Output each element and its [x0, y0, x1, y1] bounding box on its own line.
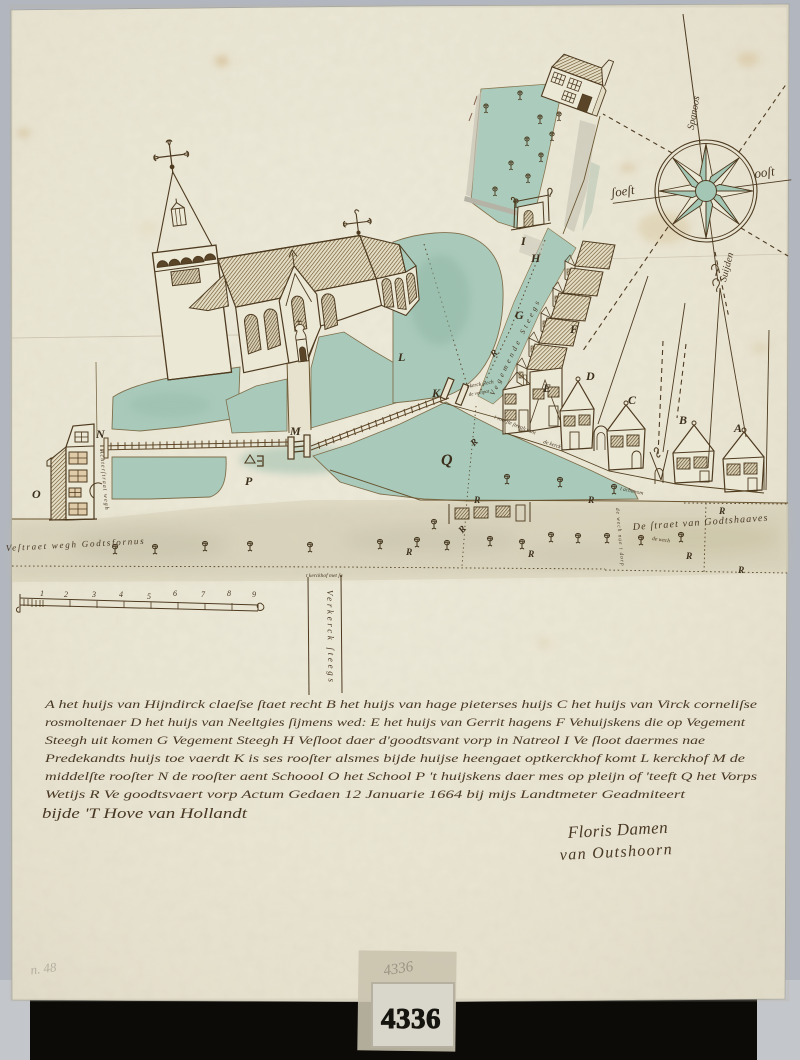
svg-text:Steegh uit komen G Vegement St: Steegh uit komen G Vegement Steegh H Veſ…	[45, 735, 705, 747]
svg-text:N: N	[95, 427, 106, 441]
svg-text:R: R	[527, 550, 534, 560]
svg-text:R: R	[685, 552, 692, 562]
svg-text:ooſt: ooſt	[753, 163, 775, 181]
svg-text:1: 1	[40, 589, 44, 598]
svg-text:B: B	[678, 413, 687, 427]
svg-text:R: R	[405, 548, 412, 558]
svg-text:t kerckhof met ſa: t kerckhof met ſa	[306, 572, 343, 579]
svg-text:R: R	[473, 496, 480, 506]
svg-text:D: D	[585, 369, 595, 383]
svg-text:middelſte rooſter N de rooſter: middelſte rooſter N de rooſter aent Scho…	[45, 771, 758, 783]
svg-text:R: R	[587, 496, 594, 506]
svg-text:O: O	[32, 487, 41, 501]
svg-text:Q: Q	[441, 452, 453, 469]
svg-text:P: P	[245, 474, 253, 488]
svg-text:L: L	[397, 350, 405, 364]
svg-text:4336: 4336	[381, 1003, 441, 1035]
svg-text:2: 2	[64, 590, 68, 599]
svg-text:Predekandts huijs toe vaerdt K: Predekandts huijs toe vaerdt K is ses ro…	[44, 753, 745, 765]
svg-text:5: 5	[147, 592, 151, 601]
svg-text:4: 4	[119, 590, 123, 599]
svg-text:F: F	[569, 322, 578, 336]
svg-text:R: R	[737, 566, 744, 576]
svg-text:A: A	[733, 421, 742, 435]
svg-text:8: 8	[227, 589, 231, 598]
svg-text:H: H	[530, 251, 541, 265]
svg-text:9: 9	[252, 590, 256, 599]
svg-text:K: K	[431, 386, 441, 400]
svg-text:bijde 'T Hove van Hollandt: bijde 'T Hove van Hollandt	[42, 806, 248, 822]
svg-text:rosmoltenaer D het huijs van N: rosmoltenaer D het huijs van Neeltgies ſ…	[45, 717, 746, 729]
svg-text:Wetijs R Ve goodtsvaert vorp A: Wetijs R Ve goodtsvaert vorp Actum Gedae…	[45, 789, 686, 801]
svg-text:E: E	[542, 381, 551, 395]
svg-text:6: 6	[173, 589, 177, 598]
svg-text:A het huijs van Hijndirck clae: A het huijs van Hijndirck claeſse ſtaet …	[44, 699, 757, 711]
svg-text:C: C	[628, 393, 637, 407]
svg-text:3: 3	[91, 590, 96, 599]
svg-text:n. 48: n. 48	[30, 959, 58, 977]
svg-text:M: M	[289, 424, 301, 438]
